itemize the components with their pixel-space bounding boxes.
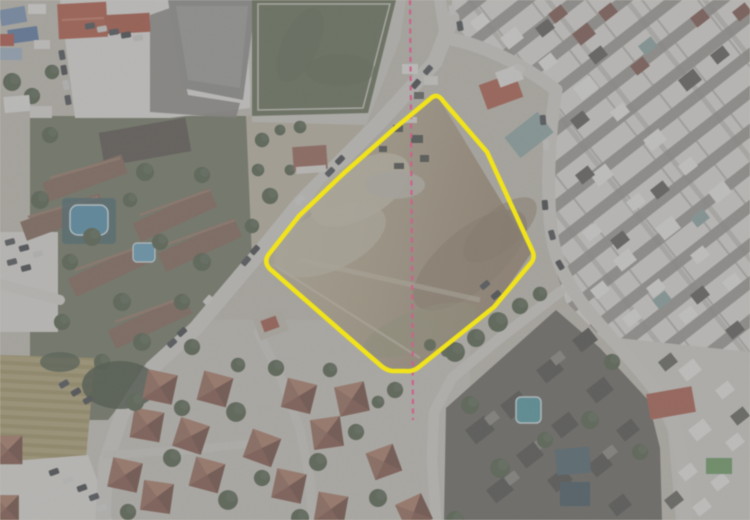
photo-grain [0,0,750,520]
aerial-photo-canvas [0,0,750,520]
aerial-photo [0,0,750,520]
